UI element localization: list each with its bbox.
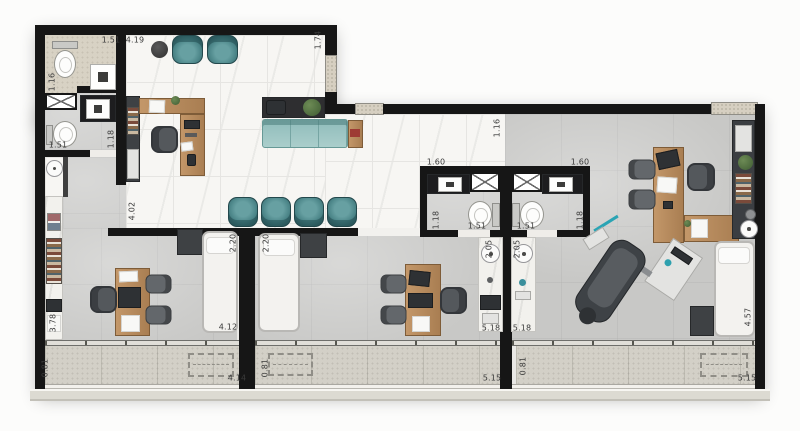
dimension-label: 0.81: [261, 359, 270, 378]
dimension-label: 1.16: [48, 73, 57, 92]
dimension-label: 2.05: [485, 240, 494, 259]
dimension-label: 1.74: [314, 31, 323, 50]
dimension-label: 5.18: [513, 324, 532, 333]
dimension-label: 0.81: [41, 359, 50, 378]
dimension-label: 1.18: [107, 130, 116, 149]
dimension-label: 1.51: [468, 222, 487, 231]
dimension-label: 1.18: [576, 211, 585, 230]
dimension-label: 4.19: [126, 36, 145, 45]
dimension-label: 5.15: [483, 374, 502, 383]
dimension-label: 3.78: [49, 314, 58, 333]
dimension-label: 2.05: [513, 240, 522, 259]
dimension-label: 1.51: [102, 36, 121, 45]
dimension-label: 4.12: [219, 323, 238, 332]
dimension-label: 5.18: [482, 324, 501, 333]
dimension-labels: 1.514.191.741.161.181.514.021.161.601.60…: [0, 0, 800, 431]
dimension-label: 4.57: [744, 308, 753, 327]
dimension-label: 1.60: [427, 158, 446, 167]
dimension-label: 1.51: [49, 141, 68, 150]
dimension-label: 4.14: [228, 374, 247, 383]
dimension-label: 2.20: [262, 234, 271, 253]
dimension-label: 1.18: [432, 211, 441, 230]
dimension-label: 1.60: [571, 158, 590, 167]
dimension-label: 4.02: [128, 202, 137, 221]
dimension-label: 2.20: [229, 234, 238, 253]
dimension-label: 1.16: [493, 119, 502, 138]
dimension-label: 1.51: [517, 222, 536, 231]
dimension-label: 0.81: [519, 357, 528, 376]
dimension-label: 5.15: [738, 374, 757, 383]
floor-plan: 1.514.191.741.161.181.514.021.161.601.60…: [0, 0, 800, 431]
